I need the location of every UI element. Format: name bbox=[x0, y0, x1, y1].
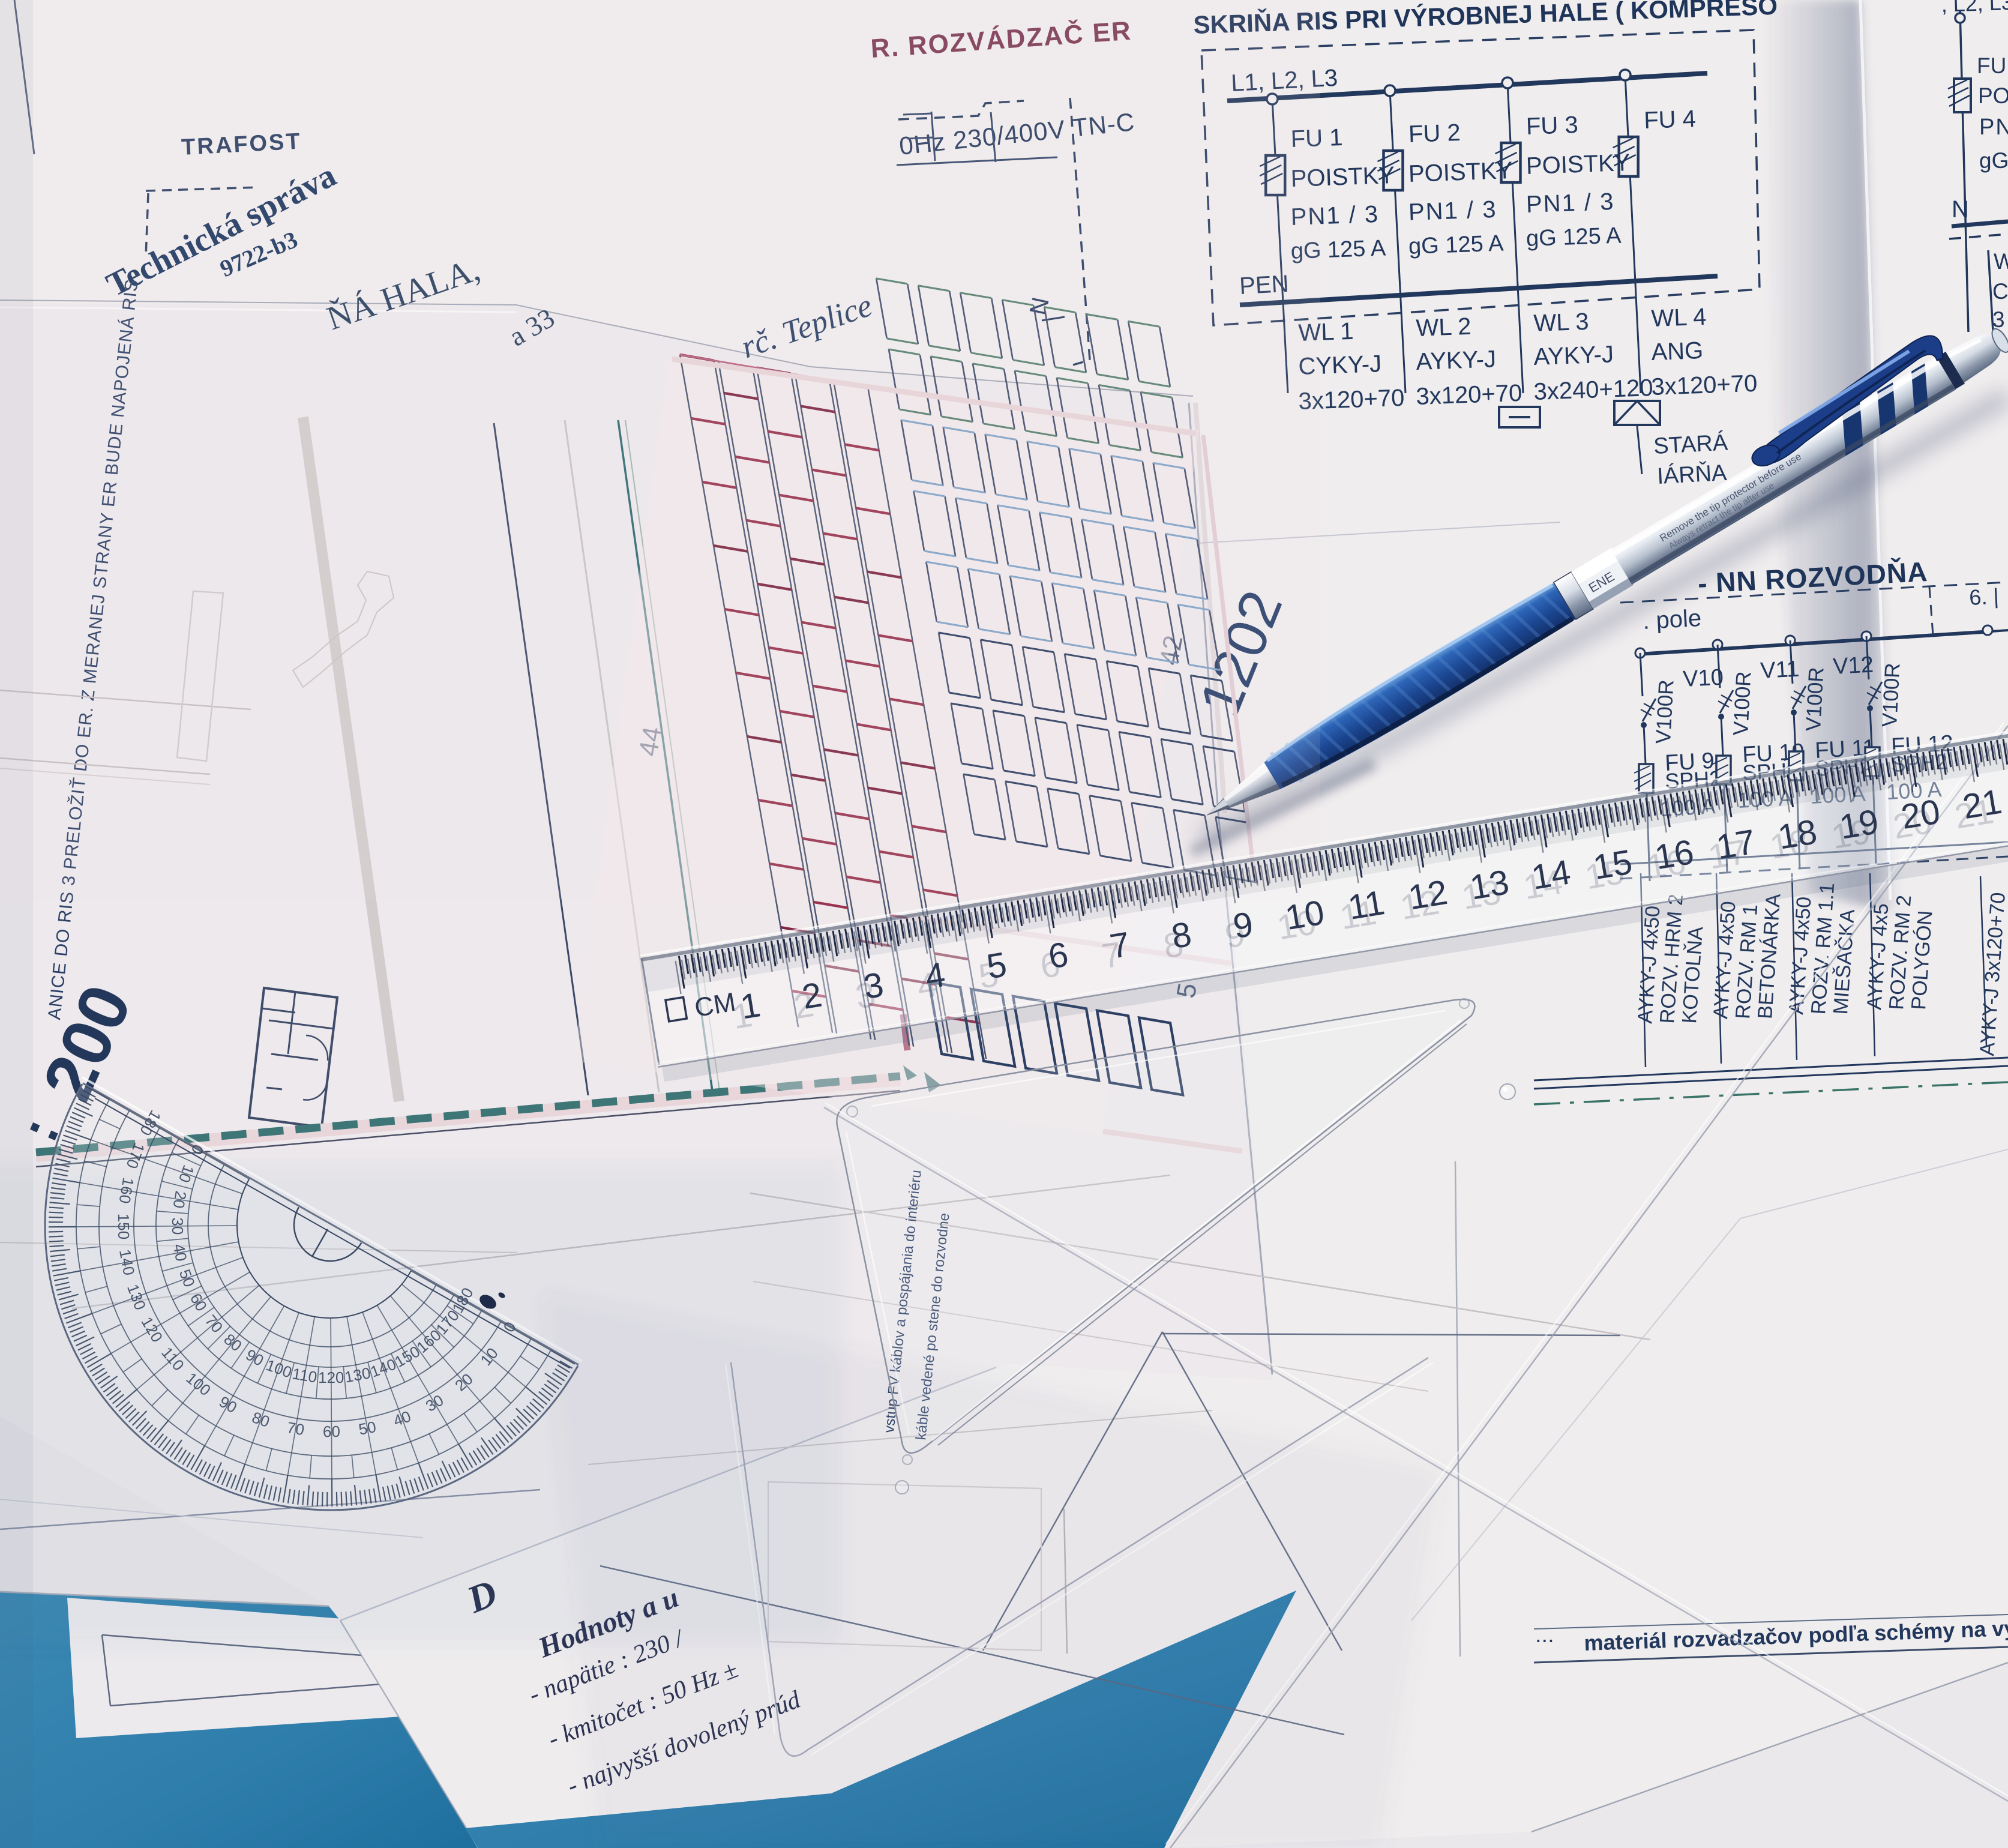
svg-text:V10: V10 bbox=[1682, 665, 1724, 692]
svg-text:POISTKY: POISTKY bbox=[1526, 149, 1631, 179]
svg-text:6. |: 6. | bbox=[1968, 583, 1999, 610]
svg-text:STARÁ: STARÁ bbox=[1653, 430, 1729, 459]
svg-text:10: 10 bbox=[1274, 903, 1318, 948]
svg-text:WL 4: WL 4 bbox=[1651, 304, 1707, 332]
svg-text:W: W bbox=[1994, 249, 2008, 274]
svg-text:N: N bbox=[1952, 196, 1969, 223]
svg-text:, L2, L3: , L2, L3 bbox=[1941, 0, 2008, 17]
svg-text:V11: V11 bbox=[1760, 657, 1800, 684]
svg-text:16: 16 bbox=[1644, 842, 1688, 887]
svg-text:WL 3: WL 3 bbox=[1533, 309, 1589, 337]
svg-text:3x120+70: 3x120+70 bbox=[1651, 370, 1758, 400]
svg-text:21: 21 bbox=[1952, 792, 1996, 837]
svg-text:FU 3: FU 3 bbox=[1526, 112, 1578, 140]
svg-text:V100R: V100R bbox=[1652, 679, 1679, 744]
svg-text:POI: POI bbox=[1978, 83, 2008, 108]
svg-text:12: 12 bbox=[1398, 882, 1442, 927]
svg-text:...: ... bbox=[1535, 1622, 1554, 1648]
svg-text:19: 19 bbox=[1829, 812, 1873, 857]
svg-text:C: C bbox=[1992, 279, 2008, 304]
svg-text:ANG: ANG bbox=[1651, 337, 1704, 366]
svg-text:13: 13 bbox=[1459, 873, 1503, 918]
svg-text:PN1 / 3: PN1 / 3 bbox=[1408, 196, 1497, 226]
svg-text:3: 3 bbox=[1992, 307, 2005, 332]
svg-text:14: 14 bbox=[1521, 862, 1565, 907]
svg-text:. pole: . pole bbox=[1642, 605, 1702, 634]
svg-text:V100R: V100R bbox=[1729, 670, 1756, 736]
svg-text:gG 125 A: gG 125 A bbox=[1526, 223, 1622, 251]
svg-text:17: 17 bbox=[1706, 832, 1750, 877]
svg-text:15: 15 bbox=[1583, 852, 1627, 897]
svg-text:AYKY-J: AYKY-J bbox=[1416, 346, 1497, 375]
svg-text:POISTKY: POISTKY bbox=[1408, 157, 1513, 187]
svg-text:3x120+70: 3x120+70 bbox=[1416, 380, 1523, 410]
svg-text:AYKY-J: AYKY-J bbox=[1533, 341, 1614, 370]
svg-text:gG: gG bbox=[1979, 148, 2008, 173]
svg-text:11: 11 bbox=[1337, 892, 1379, 937]
svg-text:V100R: V100R bbox=[1878, 662, 1905, 727]
svg-text:IÁRŇA: IÁRŇA bbox=[1656, 460, 1728, 489]
svg-text:20: 20 bbox=[1890, 802, 1935, 847]
svg-text:PN1 / 3: PN1 / 3 bbox=[1526, 188, 1615, 218]
svg-text:gG 125 A: gG 125 A bbox=[1408, 230, 1504, 259]
svg-text:WL 2: WL 2 bbox=[1416, 313, 1471, 342]
svg-text:FU 4: FU 4 bbox=[1643, 106, 1696, 134]
svg-text:PN: PN bbox=[1979, 115, 2008, 140]
svg-text:FU 2: FU 2 bbox=[1408, 119, 1461, 148]
svg-text:18: 18 bbox=[1767, 822, 1812, 867]
svg-text:V100R: V100R bbox=[1802, 666, 1829, 732]
svg-text:FU 1: FU 1 bbox=[1977, 53, 2008, 78]
